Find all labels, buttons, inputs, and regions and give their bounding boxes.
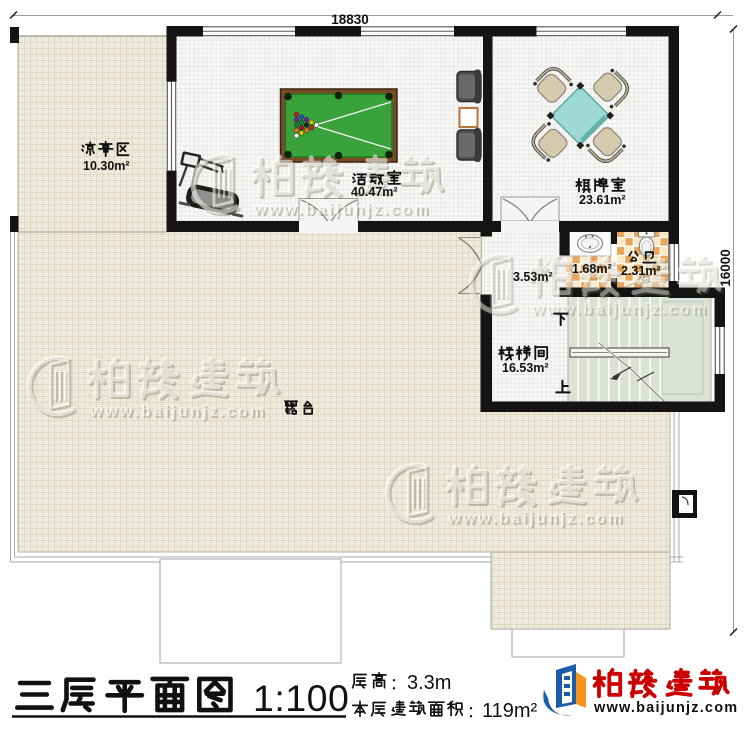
- svg-text:1.68m²: 1.68m²: [572, 262, 612, 276]
- svg-text:119m²: 119m²: [482, 700, 538, 722]
- svg-text:www.baijunjz.com: www.baijunjz.com: [593, 700, 738, 716]
- svg-text:16000: 16000: [718, 249, 733, 287]
- svg-text:www.baijunjz.com: www.baijunjz.com: [253, 201, 431, 218]
- svg-text:1:100: 1:100: [253, 677, 349, 719]
- svg-text:2.31m²: 2.31m²: [621, 264, 661, 278]
- svg-text:www.baijunjz.com: www.baijunjz.com: [531, 301, 709, 318]
- svg-text:3.3m: 3.3m: [407, 672, 451, 694]
- svg-text:：: ：: [390, 676, 406, 693]
- svg-text:16.53m²: 16.53m²: [502, 361, 549, 375]
- svg-text:www.baijunjz.com: www.baijunjz.com: [447, 510, 625, 527]
- svg-text:18830: 18830: [331, 12, 369, 27]
- svg-text:www.baijunjz.com: www.baijunjz.com: [89, 403, 267, 420]
- svg-text:3.53m²: 3.53m²: [513, 270, 553, 284]
- svg-text:40.47m²: 40.47m²: [351, 185, 398, 199]
- svg-text:10.30m²: 10.30m²: [83, 159, 130, 173]
- svg-text:：: ：: [467, 704, 483, 721]
- svg-text:23.61m²: 23.61m²: [579, 193, 626, 207]
